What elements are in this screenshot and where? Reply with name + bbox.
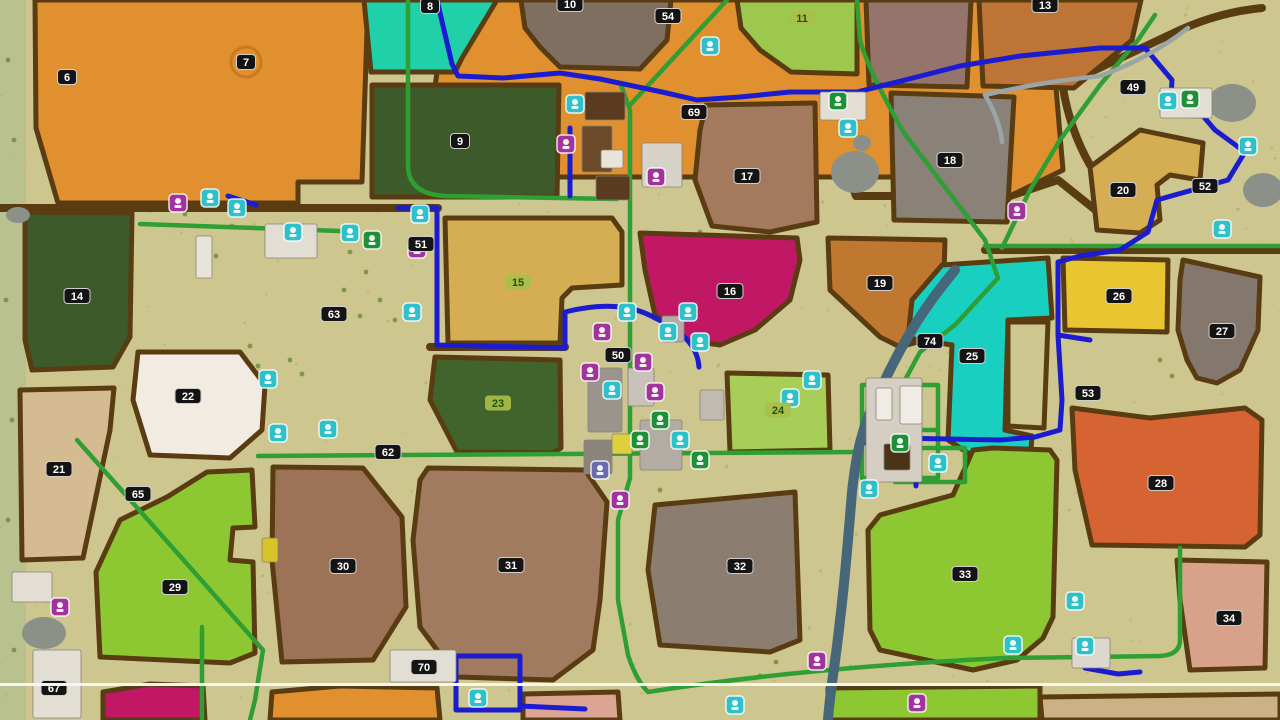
- poi-glyph: [707, 41, 713, 47]
- station-poi-icon[interactable]: [929, 454, 947, 472]
- station-poi-icon[interactable]: [679, 303, 697, 321]
- station-poi-icon[interactable]: [228, 199, 246, 217]
- poi-glyph: [685, 307, 691, 313]
- poi-glyph: [787, 393, 793, 399]
- field-badge-67: 67: [41, 681, 67, 696]
- badge-number: 7: [243, 57, 249, 69]
- badge-number: 32: [734, 561, 746, 573]
- station-poi-icon[interactable]: [701, 37, 719, 55]
- field-badge-29: 29: [162, 580, 188, 595]
- sellpoint-poi-icon[interactable]: [829, 92, 847, 110]
- poi-glyph: [637, 442, 644, 445]
- poi-glyph: [897, 445, 904, 448]
- poi-glyph: [57, 609, 64, 612]
- badge-number: 25: [966, 351, 978, 363]
- poi-glyph: [599, 327, 605, 333]
- station-poi-icon[interactable]: [618, 303, 636, 321]
- poi-glyph: [597, 465, 603, 471]
- field-badge-49: 49: [1120, 80, 1146, 95]
- production-poi-icon[interactable]: [557, 135, 575, 153]
- field-6[interactable]: [35, 0, 368, 203]
- poi-glyph: [697, 344, 704, 347]
- station-poi-icon[interactable]: [659, 323, 677, 341]
- badge-number: 8: [427, 1, 433, 13]
- poi-glyph: [1010, 647, 1017, 650]
- badge-number: 34: [1223, 613, 1236, 625]
- poi-glyph: [657, 415, 663, 421]
- poi-glyph: [1245, 141, 1251, 147]
- field-badge-16: 16: [717, 284, 743, 299]
- field-badge-6: 6: [58, 70, 77, 85]
- poi-glyph: [290, 227, 296, 233]
- production-poi-icon[interactable]: [581, 363, 599, 381]
- poi-glyph: [587, 367, 593, 373]
- badge-number: 69: [688, 107, 700, 119]
- badge-number: 30: [337, 561, 349, 573]
- water-route: [520, 706, 585, 709]
- poi-glyph: [866, 491, 873, 494]
- station-poi-icon[interactable]: [284, 223, 302, 241]
- poi-glyph: [234, 210, 241, 213]
- field-region[interactable]: [103, 684, 205, 720]
- poi-glyph: [814, 663, 821, 666]
- sellpoint-poi-icon[interactable]: [691, 451, 709, 469]
- field-region[interactable]: [270, 686, 440, 720]
- field-badge-53: 53: [1075, 386, 1101, 401]
- poi-glyph: [290, 234, 297, 237]
- poi-glyph: [572, 99, 578, 105]
- field-22[interactable]: [133, 352, 265, 458]
- building: [876, 388, 892, 420]
- poi-glyph: [369, 242, 376, 245]
- station-poi-icon[interactable]: [839, 119, 857, 137]
- field-badge-54: 54: [655, 9, 681, 24]
- badge-number: 6: [64, 72, 70, 84]
- poi-glyph: [563, 139, 569, 145]
- poi-glyph: [1165, 96, 1171, 102]
- field-17[interactable]: [695, 103, 817, 232]
- field-badge-19: 19: [867, 276, 893, 291]
- field-badge-52: 52: [1192, 179, 1218, 194]
- field-badge-62: 62: [375, 445, 401, 460]
- poi-glyph: [207, 200, 214, 203]
- poi-glyph: [1014, 213, 1021, 216]
- poi-glyph: [265, 374, 271, 380]
- poi-glyph: [640, 357, 646, 363]
- building: [900, 386, 922, 424]
- station-poi-icon[interactable]: [341, 224, 359, 242]
- badge-number: 54: [662, 11, 675, 23]
- field-badge-51: 51: [408, 237, 434, 252]
- poi-glyph: [914, 705, 921, 708]
- poi-glyph: [417, 209, 423, 215]
- poi-glyph: [234, 203, 240, 209]
- poi-glyph: [624, 307, 630, 313]
- field-badge-13: 13: [1032, 0, 1058, 13]
- station-poi-icon[interactable]: [566, 95, 584, 113]
- badge-number: 26: [1113, 291, 1125, 303]
- field-region[interactable]: [828, 686, 1040, 720]
- production-poi-icon[interactable]: [634, 353, 652, 371]
- field-badge-33: 33: [952, 567, 978, 582]
- field-badge-69: 69: [681, 105, 707, 120]
- station-poi-icon[interactable]: [691, 333, 709, 351]
- field-badge-27: 27: [1209, 324, 1235, 339]
- poi-glyph: [572, 106, 579, 109]
- poi-glyph: [617, 495, 623, 501]
- station-poi-icon[interactable]: [726, 696, 744, 714]
- poi-glyph: [809, 382, 816, 385]
- poi-glyph: [809, 375, 815, 381]
- badge-number: 21: [53, 464, 65, 476]
- poi-glyph: [563, 146, 570, 149]
- field-badge-14: 14: [64, 289, 90, 304]
- station-poi-icon[interactable]: [603, 381, 621, 399]
- badge-number: 27: [1216, 326, 1228, 338]
- badge-number: 11: [796, 13, 808, 25]
- badge-number: 52: [1199, 181, 1211, 193]
- pond: [22, 617, 66, 649]
- field-badge-31: 31: [498, 558, 524, 573]
- sellpoint-poi-icon[interactable]: [363, 231, 381, 249]
- poi-glyph: [599, 334, 606, 337]
- farm-overview-map: 6789101113141516171819202122232425262728…: [0, 0, 1280, 720]
- station-poi-icon[interactable]: [1004, 636, 1022, 654]
- field-badge-26: 26: [1106, 289, 1132, 304]
- pond: [853, 135, 871, 151]
- field-badge-18: 18: [937, 153, 963, 168]
- poi-glyph: [1082, 641, 1088, 647]
- poi-glyph: [617, 502, 624, 505]
- poi-glyph: [707, 48, 714, 51]
- poi-glyph: [475, 700, 482, 703]
- badge-number: 49: [1127, 82, 1139, 94]
- station-poi-icon[interactable]: [1066, 592, 1084, 610]
- poi-glyph: [587, 374, 594, 377]
- building: [196, 236, 212, 278]
- station-poi-icon[interactable]: [469, 689, 487, 707]
- station-poi-icon[interactable]: [259, 370, 277, 388]
- poi-glyph: [609, 392, 616, 395]
- poi-glyph: [1082, 648, 1089, 651]
- poi-glyph: [845, 123, 851, 129]
- poi-glyph: [1245, 148, 1252, 151]
- poi-glyph: [275, 428, 281, 434]
- badge-number: 65: [132, 489, 144, 501]
- station-poi-icon[interactable]: [1159, 92, 1177, 110]
- building: [700, 390, 724, 420]
- badge-number: 70: [418, 662, 430, 674]
- field-badge-9: 9: [451, 134, 470, 149]
- badge-number: 20: [1117, 185, 1129, 197]
- field-badge-32: 32: [727, 559, 753, 574]
- poi-glyph: [1165, 103, 1172, 106]
- poi-glyph: [1219, 224, 1225, 230]
- field-32[interactable]: [648, 492, 800, 652]
- poi-glyph: [1010, 640, 1016, 646]
- station-poi-icon[interactable]: [860, 480, 878, 498]
- badge-number: 63: [328, 309, 340, 321]
- screen-divider-line: [0, 683, 1280, 686]
- building: [262, 538, 278, 562]
- pda-map-screen: 6789101113141516171819202122232425262728…: [0, 0, 1280, 720]
- station-poi-icon[interactable]: [201, 189, 219, 207]
- poi-glyph: [677, 435, 683, 441]
- production-poi-icon[interactable]: [51, 598, 69, 616]
- field-badge-34: 34: [1216, 611, 1242, 626]
- station-poi-icon[interactable]: [403, 303, 421, 321]
- poi-glyph: [1219, 231, 1226, 234]
- poi-glyph: [409, 307, 415, 313]
- poi-glyph: [175, 198, 181, 204]
- poi-glyph: [653, 172, 659, 178]
- building: [612, 434, 632, 454]
- poi-glyph: [653, 179, 660, 182]
- poi-glyph: [1187, 94, 1193, 100]
- production-poi-icon[interactable]: [169, 194, 187, 212]
- field-badge-25: 25: [959, 349, 985, 364]
- field-badge-10: 10: [557, 0, 583, 12]
- badge-number: 29: [169, 582, 181, 594]
- station-poi-icon[interactable]: [1076, 637, 1094, 655]
- field-badge-28: 28: [1148, 476, 1174, 491]
- badge-number: 18: [944, 155, 956, 167]
- station-poi-icon[interactable]: [269, 424, 287, 442]
- poi-glyph: [175, 205, 182, 208]
- badge-number: 19: [874, 278, 886, 290]
- station-poi-icon[interactable]: [671, 431, 689, 449]
- field-badge-15: 15: [505, 275, 531, 290]
- production-poi-icon[interactable]: [908, 694, 926, 712]
- map-edge-strip: [0, 0, 26, 720]
- pond: [6, 207, 30, 223]
- badge-number: 28: [1155, 478, 1167, 490]
- poi-glyph: [417, 216, 424, 219]
- station-poi-icon[interactable]: [411, 205, 429, 223]
- sellpoint-poi-icon[interactable]: [891, 434, 909, 452]
- building: [596, 176, 630, 200]
- field-badge-70: 70: [411, 660, 437, 675]
- badge-number: 50: [612, 350, 624, 362]
- field-badge-20: 20: [1110, 183, 1136, 198]
- poi-glyph: [640, 364, 647, 367]
- field-badge-11: 11: [789, 11, 815, 26]
- field-badge-30: 30: [330, 559, 356, 574]
- animal-dealer-poi-icon[interactable]: [647, 168, 665, 186]
- building: [585, 92, 625, 120]
- field-badge-24: 24: [765, 403, 791, 418]
- sellpoint-poi-icon[interactable]: [631, 431, 649, 449]
- poi-glyph: [207, 193, 213, 199]
- poi-glyph: [697, 337, 703, 343]
- poi-glyph: [665, 327, 671, 333]
- field-badge-65: 65: [125, 487, 151, 502]
- poi-glyph: [732, 707, 739, 710]
- pond: [1208, 84, 1256, 122]
- poi-glyph: [325, 424, 331, 430]
- poi-glyph: [897, 438, 903, 444]
- poi-glyph: [677, 442, 684, 445]
- field-badge-8: 8: [421, 0, 440, 14]
- badge-number: 51: [415, 239, 427, 251]
- station-poi-icon[interactable]: [319, 420, 337, 438]
- badge-number: 24: [772, 405, 785, 417]
- production-poi-icon[interactable]: [1008, 202, 1026, 220]
- poi-glyph: [637, 435, 643, 441]
- poi-glyph: [369, 235, 375, 241]
- field-badge-23: 23: [485, 396, 511, 411]
- badge-number: 33: [959, 569, 971, 581]
- poi-glyph: [275, 435, 282, 438]
- field-31[interactable]: [413, 468, 607, 680]
- field-region[interactable]: [866, 0, 971, 87]
- production-poi-icon[interactable]: [611, 491, 629, 509]
- poi-glyph: [347, 228, 353, 234]
- poi-glyph: [475, 693, 481, 699]
- poi-glyph: [665, 334, 672, 337]
- poi-glyph: [57, 602, 63, 608]
- poi-glyph: [697, 455, 703, 461]
- poi-glyph: [814, 656, 820, 662]
- badge-number: 31: [505, 560, 517, 572]
- poi-glyph: [1014, 206, 1020, 212]
- badge-number: 23: [492, 398, 504, 410]
- field-badge-22: 22: [175, 389, 201, 404]
- poi-glyph: [597, 472, 604, 475]
- badge-number: 16: [724, 286, 736, 298]
- poi-glyph: [652, 387, 658, 393]
- station-poi-icon[interactable]: [1239, 137, 1257, 155]
- production-poi-icon[interactable]: [593, 323, 611, 341]
- badge-number: 74: [924, 336, 937, 348]
- badge-number: 53: [1082, 388, 1094, 400]
- station-poi-icon[interactable]: [803, 371, 821, 389]
- poi-glyph: [685, 314, 692, 317]
- poi-glyph: [1072, 603, 1079, 606]
- field-badge-50: 50: [605, 348, 631, 363]
- badge-number: 15: [512, 277, 524, 289]
- poi-glyph: [1187, 101, 1194, 104]
- poi-glyph: [409, 314, 416, 317]
- poi-glyph: [609, 385, 615, 391]
- pond: [831, 151, 879, 193]
- badge-number: 13: [1039, 0, 1051, 12]
- field-badge-63: 63: [321, 307, 347, 322]
- poi-glyph: [624, 314, 631, 317]
- poi-glyph: [835, 103, 842, 106]
- poi-glyph: [835, 96, 841, 102]
- production-poi-icon[interactable]: [808, 652, 826, 670]
- poi-glyph: [697, 462, 704, 465]
- poi-glyph: [347, 235, 354, 238]
- badge-number: 17: [741, 171, 753, 183]
- building: [12, 572, 52, 602]
- field-badge-21: 21: [46, 462, 72, 477]
- poi-glyph: [325, 431, 332, 434]
- building: [601, 150, 623, 168]
- poi-glyph: [845, 130, 852, 133]
- production-poi-icon[interactable]: [646, 383, 664, 401]
- poi-glyph: [657, 422, 664, 425]
- badge-number: 62: [382, 447, 394, 459]
- station-poi-icon[interactable]: [1213, 220, 1231, 238]
- field-region[interactable]: [1008, 322, 1048, 428]
- poi-glyph: [866, 484, 872, 490]
- sellpoint-poi-icon[interactable]: [651, 411, 669, 429]
- poi-glyph: [732, 700, 738, 706]
- badge-number: 14: [71, 291, 84, 303]
- poi-glyph: [265, 381, 272, 384]
- field-badge-17: 17: [734, 169, 760, 184]
- poi-glyph: [935, 458, 941, 464]
- poi-glyph: [914, 698, 920, 704]
- field-region[interactable]: [1040, 694, 1280, 720]
- poi-glyph: [1072, 596, 1078, 602]
- field-badge-74: 74: [917, 334, 943, 349]
- badge-number: 22: [182, 391, 194, 403]
- poi-glyph: [935, 465, 942, 468]
- poi-glyph: [652, 394, 659, 397]
- sellpoint-poi-icon[interactable]: [1181, 90, 1199, 108]
- garage-poi-icon[interactable]: [591, 461, 609, 479]
- badge-number: 10: [564, 0, 576, 11]
- badge-number: 9: [457, 136, 463, 148]
